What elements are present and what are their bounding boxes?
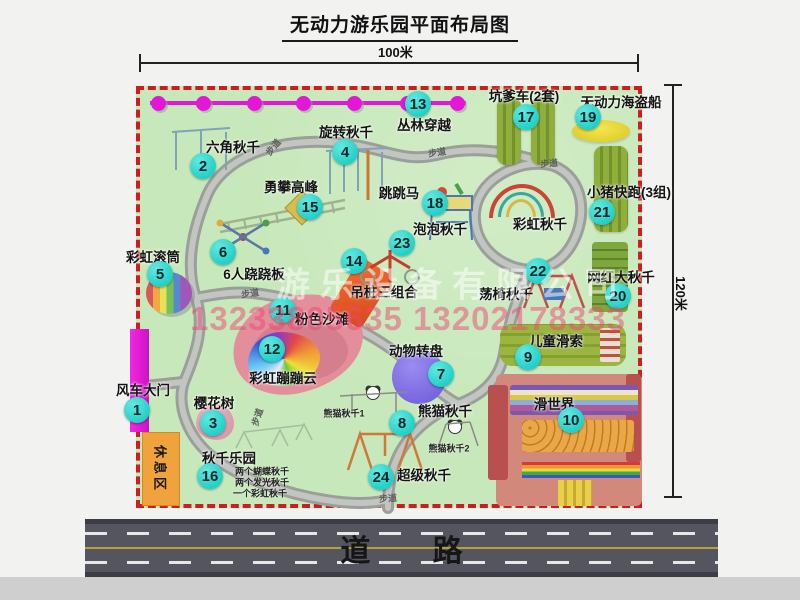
badge-24: 24 — [368, 464, 394, 490]
badge-4: 4 — [332, 139, 358, 165]
label-rotating-swing: 旋转秋千 — [319, 121, 373, 141]
badge-5: 5 — [147, 261, 173, 287]
jungle-crossing-node — [450, 96, 465, 111]
badge-13: 13 — [405, 91, 431, 117]
jungle-crossing-node — [347, 96, 362, 111]
label-panda-swing-2: 熊猫秋千2 — [428, 442, 469, 455]
badge-23: 23 — [389, 230, 415, 256]
badge-2: 2 — [190, 153, 216, 179]
jungle-crossing-node — [151, 96, 166, 111]
rest-area-label: 休息区 — [152, 445, 171, 493]
label-jump-horse: 跳跳马 — [379, 182, 420, 202]
badge-6: 6 — [210, 239, 236, 265]
label-jungle-crossing: 丛林穿越 — [397, 114, 451, 134]
climb-peak-icon — [220, 191, 345, 232]
badge-3: 3 — [200, 410, 226, 436]
label-rainbow-swing: 彩虹秋千 — [513, 213, 567, 233]
label-bubble-swing: 泡泡秋千 — [413, 218, 467, 238]
badge-10: 10 — [558, 407, 584, 433]
label-panda-swing-1: 熊猫秋千1 — [323, 407, 364, 420]
badge-9: 9 — [515, 344, 541, 370]
watermark-phones: 13233805635 13202178333 — [190, 300, 626, 338]
label-climb-peak: 勇攀高峰 — [264, 176, 318, 196]
badge-12: 12 — [259, 336, 285, 362]
badge-18: 18 — [422, 190, 448, 216]
label-panda-swing: 熊猫秋千 — [418, 400, 472, 420]
badge-7: 7 — [428, 361, 454, 387]
rest-area: 休息区 — [142, 432, 180, 506]
badge-19: 19 — [575, 104, 601, 130]
badge-8: 8 — [389, 410, 415, 436]
label-cherry-tree: 樱花树 — [194, 392, 235, 412]
badge-17: 17 — [513, 104, 539, 130]
label-windmill-gate: 风车大门 — [116, 379, 170, 399]
jungle-crossing-node — [247, 96, 262, 111]
swing-paradise-icons — [236, 424, 312, 448]
badge-15: 15 — [297, 194, 323, 220]
label-rainbow-cloud: 彩虹蹦蹦云 — [249, 367, 317, 387]
badge-21: 21 — [589, 199, 615, 225]
walkway-label: 步道 — [240, 285, 260, 300]
walkway-label: 步道 — [427, 144, 447, 159]
label-hex-swing: 六角秋千 — [206, 136, 260, 156]
park-layout-map: 无动力游乐园平面布局图 100米 120米 休息区 — [0, 0, 800, 600]
label-super-swing: 超级秋千 — [397, 464, 451, 484]
badge-16: 16 — [197, 463, 223, 489]
badge-1: 1 — [124, 397, 150, 423]
swing-paradise-note-3: 一个彩虹秋千 — [233, 487, 287, 500]
jungle-crossing-node — [296, 96, 311, 111]
walkway-label: 步道 — [379, 491, 398, 505]
label-pit-car: 坑爹车(2套) — [489, 85, 560, 105]
label-piggy-run: 小猪快跑(3组) — [587, 181, 671, 201]
walkway-label: 步道 — [539, 156, 558, 171]
jungle-crossing-node — [196, 96, 211, 111]
label-animal-turntable: 动物转盘 — [389, 340, 443, 360]
